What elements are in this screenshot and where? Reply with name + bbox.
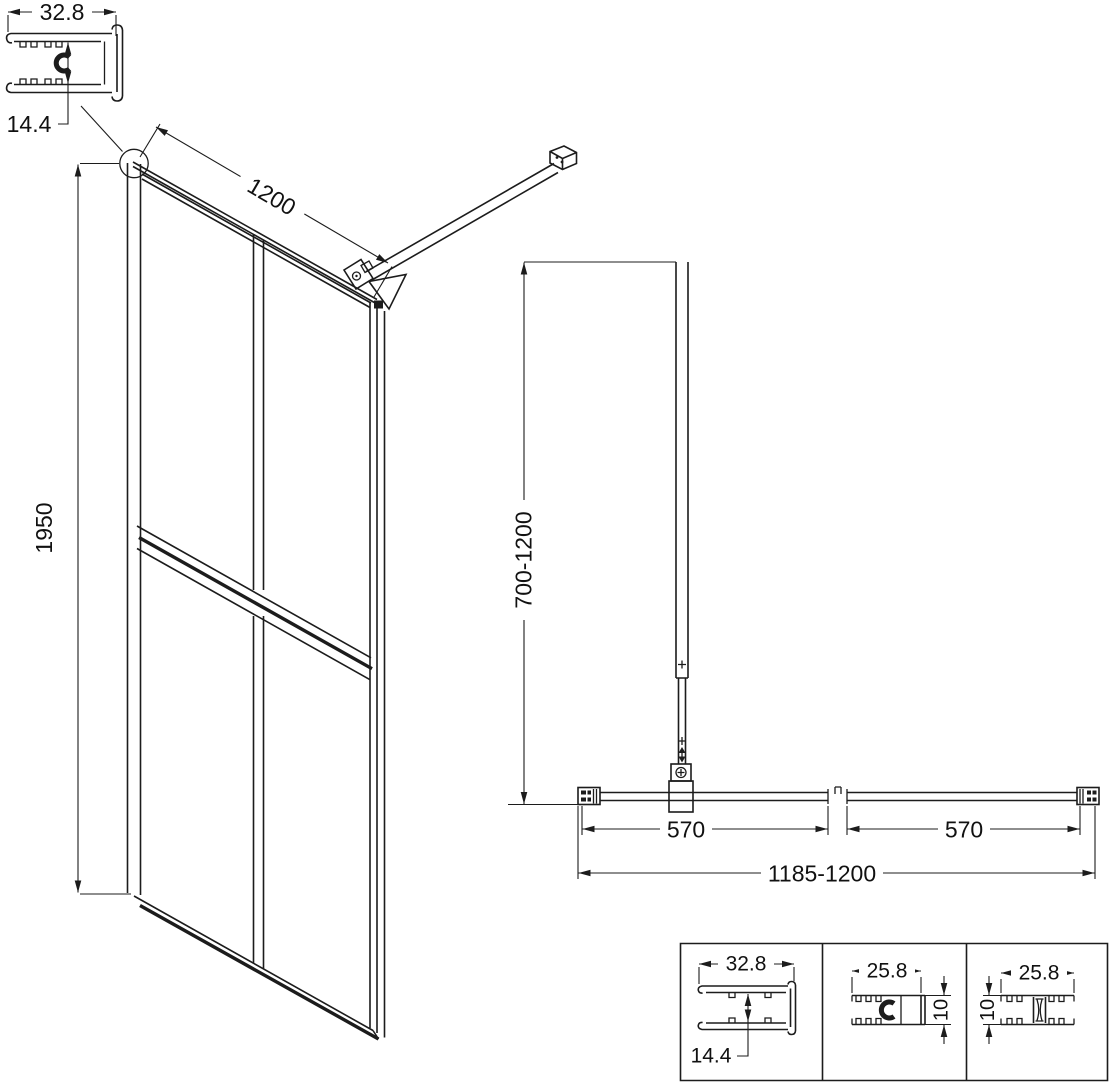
table-cell-flat-profile: 25.8 10 [977, 962, 1074, 1045]
hourglass-web [1036, 999, 1044, 1021]
right-span-label: 570 [945, 817, 983, 843]
break-symbol [828, 787, 847, 804]
width-dimension: 1200 [140, 124, 392, 297]
adjust-mark-upper [678, 661, 686, 669]
corner-profile-detail: 32.8 14.4 [7, 0, 123, 152]
corner-block [374, 301, 383, 309]
overall-width-label: 1185-1200 [768, 861, 876, 887]
height-dimension: 1950 [31, 164, 131, 895]
foot-bracket [669, 781, 693, 812]
corner-detail-circle [120, 149, 148, 177]
leader-line [58, 84, 68, 125]
wall-profile-depth-label: 14.4 [691, 1045, 732, 1068]
plan-view: 700-1200 [508, 262, 1099, 887]
front-view: 1950 1200 [31, 124, 577, 1039]
right-wall-profile-cap [1077, 788, 1099, 805]
profile-table: 32.8 14.4 25.8 [681, 944, 1108, 1081]
left-span-label: 570 [667, 817, 705, 843]
front-height-label: 1950 [31, 502, 57, 553]
grid-bars [137, 235, 372, 970]
wall-profile-section [7, 25, 123, 101]
detail-leader-line [81, 106, 123, 152]
corner-profile-width-label: 32.8 [40, 0, 85, 25]
support-arm-top-view [669, 262, 693, 812]
technical-drawing-canvas: 32.8 14.4 [0, 0, 1111, 1083]
flat-profile-section [1001, 996, 1074, 1025]
arm-length-label: 700-1200 [511, 511, 537, 608]
c-profile-section [852, 996, 925, 1025]
shower-screen-drawing: 32.8 14.4 [0, 0, 1111, 1083]
left-wall-profile-cap [578, 788, 600, 805]
table-cell-c-profile: 25.8 10 [852, 960, 953, 1045]
support-arm [344, 146, 577, 309]
wall-mount-block [550, 146, 577, 170]
arm-length-dimension: 700-1200 [511, 263, 537, 805]
table-cell-wall-profile: 32.8 14.4 [691, 953, 796, 1068]
c-profile-width-label: 25.8 [867, 960, 908, 983]
wall-profile-section-small [698, 982, 795, 1035]
screw-boss [881, 1002, 894, 1018]
panel-frame [128, 162, 385, 1039]
bottom-dimensions: 570 570 1185-1200 [578, 806, 1095, 887]
panel-top-view [578, 787, 1099, 805]
wall-profile-width-label: 32.8 [726, 953, 767, 976]
corner-profile-depth-label: 14.4 [7, 111, 52, 137]
flat-profile-width-label: 25.8 [1019, 962, 1060, 985]
c-profile-height-label: 10 [931, 999, 953, 1021]
flat-profile-height-label: 10 [977, 999, 999, 1021]
